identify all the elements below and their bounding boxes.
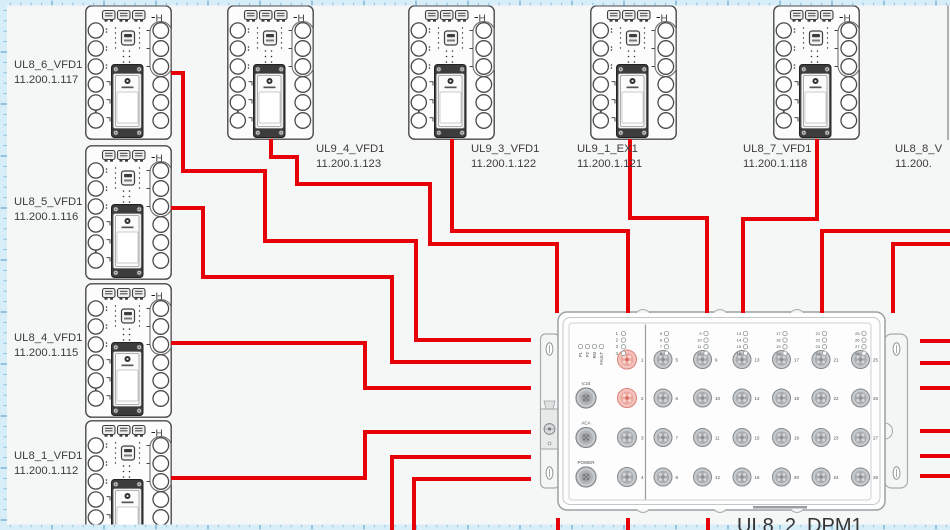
device-name-label: UL9_3_VFD1: [471, 143, 539, 155]
vfd-device[interactable]: [86, 284, 172, 417]
port-label: V.24: [582, 381, 591, 386]
port-label: ACA: [581, 421, 590, 426]
led-number-label: 9: [699, 331, 701, 336]
dpm-connector-14: [733, 389, 751, 407]
led-icon: [783, 351, 787, 355]
connector-number-label: 14: [755, 396, 760, 401]
dpm-connector-10: [694, 389, 712, 407]
connector-number-label: 12: [715, 475, 720, 480]
led-icon: [704, 331, 708, 335]
led-icon: [704, 338, 708, 342]
dpm-connector-1: [618, 350, 637, 369]
led-icon: [664, 331, 668, 335]
led-icon: [862, 338, 866, 342]
led-icon: [664, 351, 668, 355]
led-number-label: 15: [737, 344, 741, 349]
led-number-label: 23: [816, 344, 820, 349]
connector-number-label: 24: [834, 475, 839, 480]
connector-number-label: 16: [755, 475, 760, 480]
status-led-label: RM: [592, 351, 597, 358]
device-ip-label: 11.200.1.121: [577, 158, 642, 170]
device-label: UL8_8_V11.200.: [895, 143, 943, 170]
vfd-device[interactable]: [591, 6, 677, 139]
led-icon: [743, 345, 747, 349]
dpm-connector-2: [618, 389, 637, 408]
led-number-label: 16: [737, 351, 741, 356]
led-icon: [862, 345, 866, 349]
device-name-label: UL8_7_VFD1: [743, 143, 811, 155]
diagram-canvas: H: [0, 0, 950, 530]
dpm-connector-3: [618, 428, 637, 447]
mounting-clip-icon: [636, 310, 650, 314]
dpm-connector-6: [654, 389, 672, 407]
device-name-label: UL9_1_EX1: [577, 143, 638, 155]
led-icon: [592, 344, 596, 348]
vfd-device[interactable]: [774, 6, 860, 139]
connector-number-label: 13: [755, 357, 760, 362]
led-number-label: 17: [776, 331, 780, 336]
power-port: [576, 467, 596, 487]
device-name-label: UL8_1_VFD1: [14, 450, 82, 462]
device-ip-label: 11.200.1.122: [471, 158, 536, 170]
led-number-label: 22: [816, 338, 820, 343]
led-icon: [783, 338, 787, 342]
device-ip-label: 11.200.1.123: [316, 158, 381, 170]
device-name-label: UL8_6_VFD1: [14, 59, 82, 71]
connector-number-label: 20: [794, 475, 799, 480]
connector-number-label: 11: [715, 435, 720, 440]
dpm-connector-20: [773, 468, 791, 486]
ruler-top: [0, 0, 950, 6]
connector-number-label: 17: [794, 357, 799, 362]
led-number-label: 28: [855, 351, 859, 356]
status-led-label: FAULT: [599, 352, 604, 365]
vfd-device[interactable]: [86, 6, 172, 139]
led-icon: [578, 344, 582, 348]
led-icon: [783, 345, 787, 349]
aca-port: [576, 428, 596, 448]
vfd-device[interactable]: [409, 6, 495, 139]
dpm-connector-24: [812, 468, 830, 486]
led-icon: [664, 338, 668, 342]
led-number-label: 6: [660, 338, 662, 343]
dpm-connector-26: [852, 389, 870, 407]
connector-number-label: 10: [715, 396, 720, 401]
led-number-label: 5: [660, 331, 662, 336]
device-ip-label: 11.200.1.115: [14, 347, 78, 359]
led-icon: [743, 351, 747, 355]
led-number-label: 26: [855, 338, 859, 343]
vfd-device[interactable]: [86, 146, 172, 279]
led-number-label: 21: [816, 331, 820, 336]
dpm-connector-15: [733, 429, 751, 447]
status-led-label: P1: [578, 351, 583, 357]
connector-number-label: 25: [873, 357, 878, 362]
device-name-label: UL9_4_VFD1: [316, 143, 384, 155]
mounting-clip-icon: [713, 509, 727, 513]
device-label: UL9_3_VFD111.200.1.122: [471, 143, 539, 170]
device-name-label: UL8_4_VFD1: [14, 332, 82, 344]
led-icon: [621, 345, 625, 349]
v24-port: [576, 388, 596, 408]
connector-number-label: 21: [834, 357, 839, 362]
connector-number-label: 26: [873, 396, 878, 401]
vfd-device[interactable]: [228, 6, 314, 139]
device-label: UL9_4_VFD111.200.1.123: [316, 143, 384, 170]
topology-diagram: H: [0, 0, 950, 530]
device-name-label: UL8_8_V: [895, 143, 943, 155]
led-number-label: 27: [855, 344, 859, 349]
dpm-connector-16: [733, 468, 751, 486]
connector-number-label: 27: [873, 435, 878, 440]
cable-bottom-b-to-dpm[interactable]: [414, 479, 531, 530]
device-ip-label: 11.200.1.116: [14, 211, 78, 223]
dpm-name-label: UL8_2_DPM1: [737, 515, 863, 530]
dpm-connector-12: [694, 468, 712, 486]
led-icon: [704, 351, 708, 355]
dpm-connector-7: [654, 429, 672, 447]
device-label: UL8_4_VFD111.200.1.115: [14, 332, 82, 359]
led-icon: [585, 344, 589, 348]
ruler-left: [0, 0, 7, 530]
led-number-label: 13: [737, 331, 741, 336]
connector-number-label: 28: [873, 475, 878, 480]
dpm-connector-11: [694, 429, 712, 447]
device-label: UL8_1_VFD111.200.1.112: [14, 450, 82, 477]
dpm-device[interactable]: P1P2RMFAULT11223344V.24ACAPOWER556677889…: [541, 310, 908, 513]
connector-number-label: 22: [834, 396, 839, 401]
connector-number-label: 23: [834, 435, 839, 440]
led-number-label: 25: [855, 331, 859, 336]
led-number-label: 7: [660, 344, 662, 349]
led-icon: [621, 338, 625, 342]
connector-number-label: 15: [755, 435, 760, 440]
device-ip-label: 11.200.: [895, 158, 932, 170]
led-number-label: 12: [697, 351, 701, 356]
mounting-clip-icon: [636, 509, 650, 513]
led-icon: [704, 345, 708, 349]
led-icon: [664, 345, 668, 349]
cable-ul8-4-vfd1-to-dpm[interactable]: [171, 343, 531, 388]
led-number-label: 11: [697, 344, 701, 349]
mounting-clip-icon: [713, 310, 727, 314]
device-ip-label: 11.200.1.112: [14, 465, 78, 477]
led-icon: [862, 351, 866, 355]
led-icon: [743, 331, 747, 335]
device-label: UL8_6_VFD111.200.1.117: [14, 59, 82, 86]
led-icon: [783, 331, 787, 335]
device-name-label: UL8_5_VFD1: [14, 196, 82, 208]
led-icon: [621, 331, 625, 335]
dpm-connector-4: [618, 468, 637, 487]
vfd-device[interactable]: [86, 421, 172, 530]
mounting-clip-icon: [790, 310, 804, 314]
status-led-label: P2: [585, 351, 590, 357]
dpm-connector-27: [852, 429, 870, 447]
led-icon: [743, 338, 747, 342]
device-label: UL8_7_VFD111.200.1.118: [743, 143, 811, 170]
device-ip-label: 11.200.1.117: [14, 74, 78, 86]
led-icon: [822, 351, 826, 355]
cable-right-b-to-dpm[interactable]: [893, 244, 950, 313]
led-number-label: 8: [660, 351, 662, 356]
dpm-connector-28: [852, 468, 870, 486]
dpm-connector-8: [654, 468, 672, 486]
device-label: UL8_5_VFD111.200.1.116: [14, 196, 82, 223]
led-icon: [822, 338, 826, 342]
dpm-connector-5: [654, 351, 672, 369]
led-icon: [599, 344, 603, 348]
device-label: UL9_1_EX111.200.1.121: [577, 143, 642, 170]
led-number-label: 18: [776, 338, 780, 343]
led-number-label: 19: [776, 344, 780, 349]
dpm-connector-22: [812, 389, 830, 407]
dpm-connector-19: [773, 429, 791, 447]
dpm-connector-18: [773, 389, 791, 407]
led-icon: [862, 331, 866, 335]
dpm-connector-23: [812, 429, 830, 447]
mounting-clip-icon: [790, 509, 804, 513]
device-ip-label: 11.200.1.118: [743, 158, 807, 170]
led-icon: [822, 345, 826, 349]
led-icon: [822, 331, 826, 335]
port-label: POWER: [577, 460, 595, 465]
led-icon: [621, 351, 625, 355]
connector-number-label: 19: [794, 435, 799, 440]
connector-number-label: 18: [794, 396, 799, 401]
